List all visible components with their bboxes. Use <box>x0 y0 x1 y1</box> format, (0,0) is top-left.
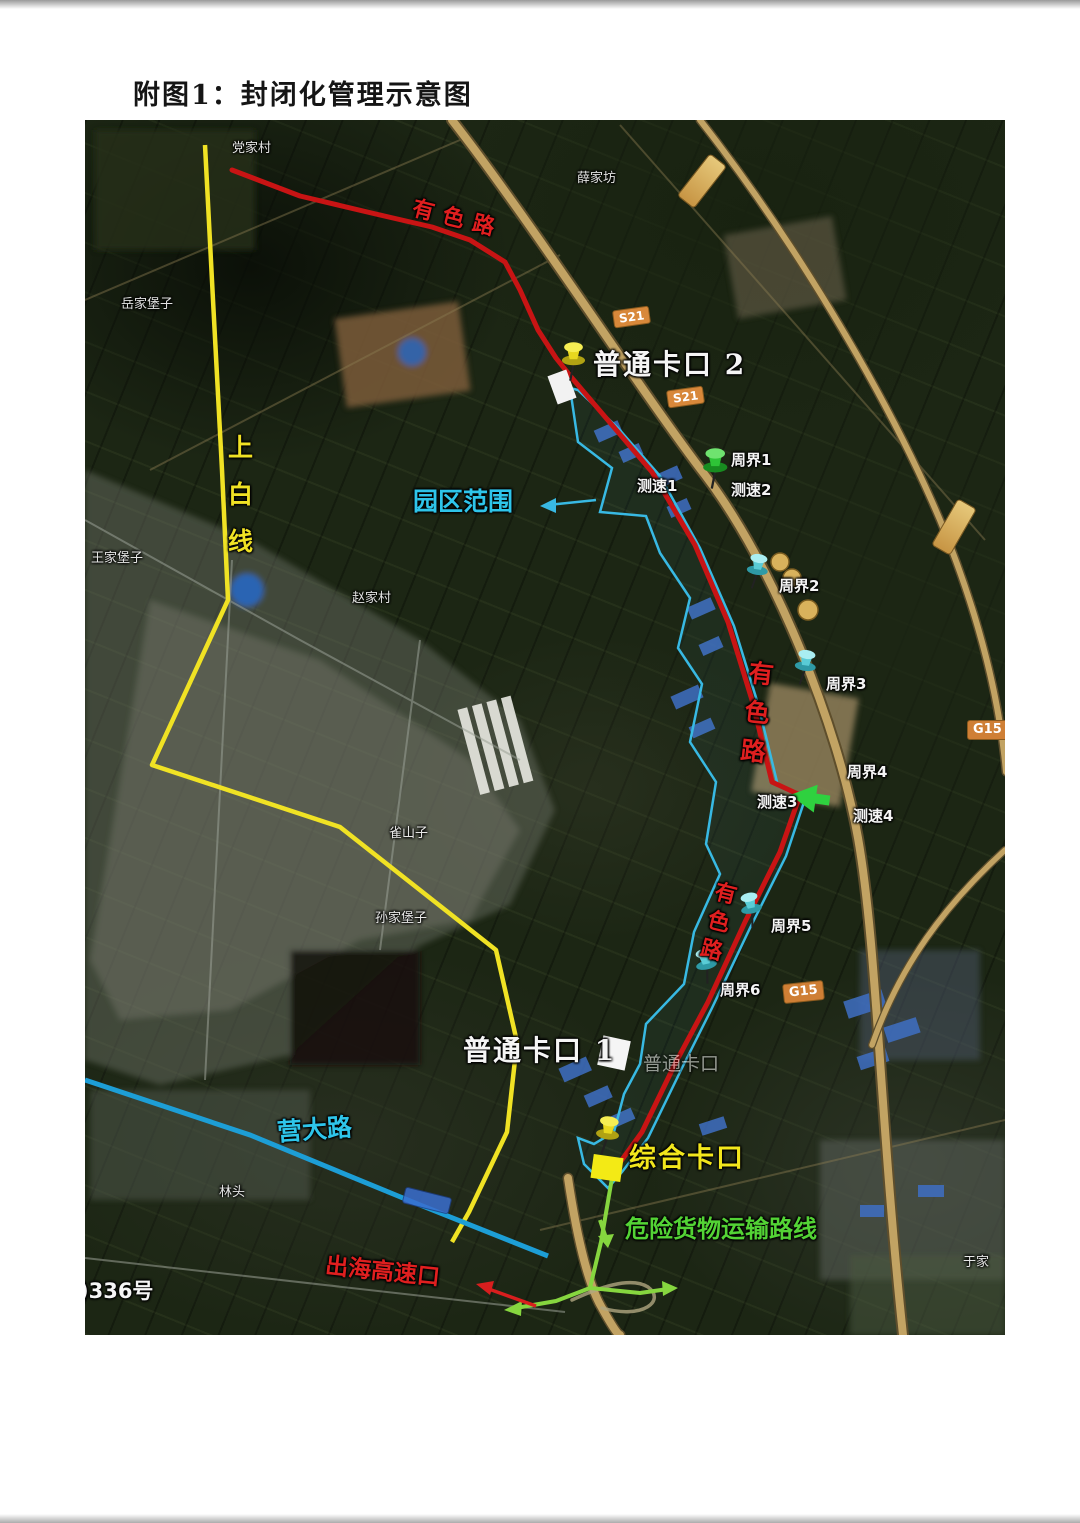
label-comprehensive-checkpoint: 综合卡口 <box>629 1144 745 1174</box>
page-title: 附图1：封闭化管理示意图 <box>133 73 473 112</box>
village-name: 薛家坊 <box>577 172 616 186</box>
village-name: 党家村 <box>232 142 271 156</box>
village-name: 赵家村 <box>352 592 391 606</box>
route-dangerous-goods-green <box>516 1178 668 1308</box>
label-perimeter-5: 周界5 <box>771 918 811 935</box>
label-speed-2: 测速2 <box>731 482 771 499</box>
label-perimeter-2: 周界2 <box>779 578 819 595</box>
label-checkpoint1-small: 普通卡口 <box>643 1054 719 1075</box>
map-graphics <box>85 120 1005 1335</box>
satellite-map[interactable]: 普通卡口 2 普通卡口 1 普通卡口 综合卡口 园区范围 危险货物运输路线 出海… <box>85 120 1005 1335</box>
label-park-range: 园区范围 <box>413 488 513 516</box>
label-checkpoint2: 普通卡口 2 <box>593 350 746 381</box>
highway-badge-g15: G15 <box>967 720 1005 740</box>
village-name: 岳家堡子 <box>121 298 173 312</box>
label-perimeter-3: 周界3 <box>826 676 866 693</box>
label-yingda-road: 营大路 <box>276 1113 353 1146</box>
comprehensive-gate-marker <box>590 1154 623 1182</box>
label-perimeter-6: 周界6 <box>720 982 760 999</box>
village-name: 孙家堡子 <box>375 912 427 926</box>
label-speed-4: 测速4 <box>853 808 893 825</box>
village-name: 雀山子 <box>389 827 428 841</box>
label-checkpoint1: 普通卡口 1 <box>463 1036 616 1067</box>
label-speed-1: 测速1 <box>637 478 677 495</box>
label-dangerous-route: 危险货物运输路线 <box>625 1216 817 1242</box>
scan-edge-top <box>0 0 1080 9</box>
label-speed-3: 测速3 <box>757 794 797 811</box>
label-ref-number: )336号 <box>85 1280 153 1303</box>
village-name: 于家 <box>963 1256 989 1270</box>
label-shangbai-line: 上白线 <box>225 434 253 575</box>
label-perimeter-1: 周界1 <box>731 452 771 469</box>
label-perimeter-4: 周界4 <box>847 764 887 781</box>
village-name: 林头 <box>219 1186 245 1200</box>
park-range-arrow <box>540 498 596 513</box>
scan-edge-bottom <box>0 1514 1080 1523</box>
village-name: 王家堡子 <box>91 552 143 566</box>
highway-badge-g15: G15 <box>782 980 825 1004</box>
